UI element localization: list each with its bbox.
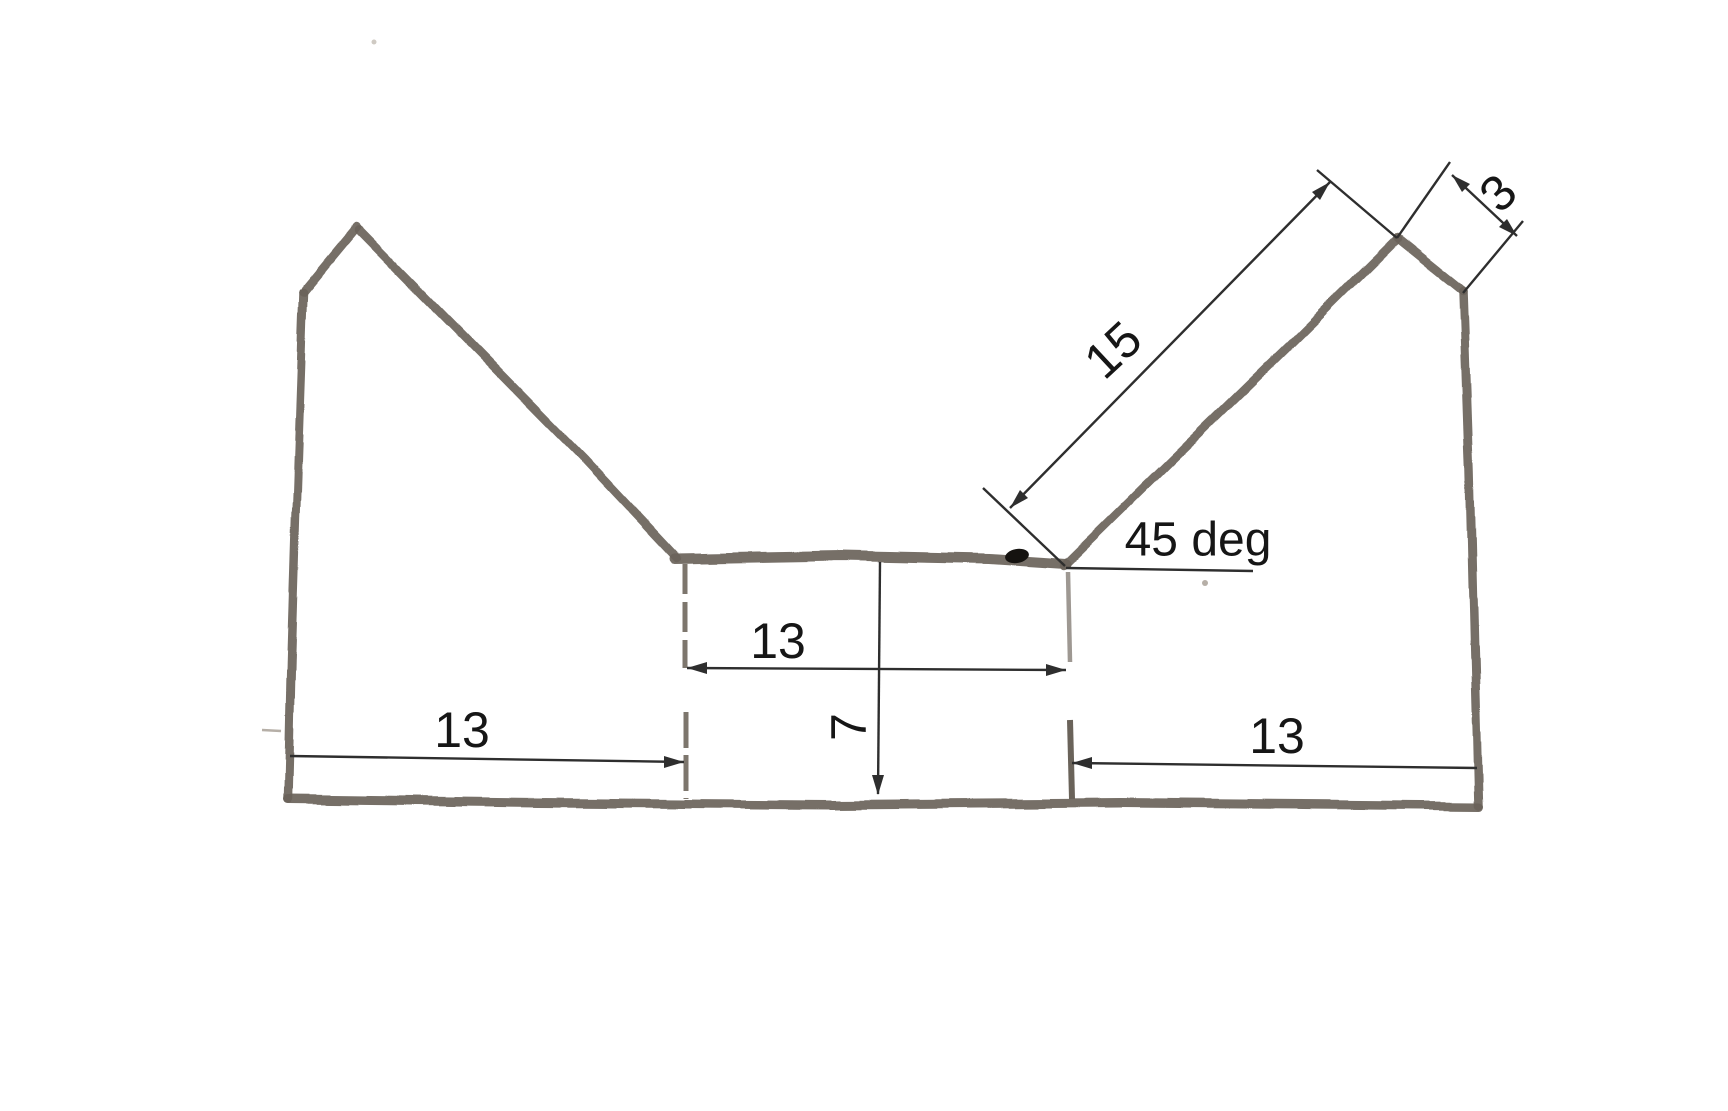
edge-left-side <box>288 292 303 800</box>
paper-speck-top <box>372 40 377 45</box>
edge-left-peak-cap <box>303 227 357 292</box>
arrowhead-depth-7 <box>872 775 884 795</box>
stray-pencil-tick <box>262 730 281 731</box>
witness-lines <box>262 40 1208 800</box>
edge-top-cut <box>1397 238 1464 292</box>
label-middle-13: 13 <box>750 613 806 669</box>
extension-line-right-peak <box>1317 170 1397 238</box>
dim-line-middle-13 <box>687 668 1066 670</box>
edge-right-side <box>1464 292 1478 805</box>
extension-line-peak-upper <box>1397 162 1450 238</box>
label-depth-7: 7 <box>821 713 877 741</box>
label-cut-3: 3 <box>1468 163 1527 222</box>
label-diagonal-15: 15 <box>1074 311 1153 390</box>
arrowhead-middle-13-left <box>687 662 707 674</box>
angle-reference-line <box>1066 568 1253 571</box>
label-bottom-right-13: 13 <box>1249 708 1305 764</box>
arrowhead-bottom-left-13 <box>664 756 684 768</box>
paper-sheet: 15 3 45 deg 13 7 13 13 <box>0 0 1728 1111</box>
dimension-lines <box>290 162 1523 795</box>
dimension-labels: 15 3 45 deg 13 7 13 13 <box>434 163 1527 764</box>
sketch-canvas: 15 3 45 deg 13 7 13 13 <box>0 0 1728 1111</box>
paper-speck-small <box>1202 580 1208 586</box>
dim-line-depth-7 <box>878 562 880 794</box>
label-angle-45deg: 45 deg <box>1125 514 1272 567</box>
edge-left-diagonal <box>359 230 677 558</box>
arrowhead-middle-13-right <box>1046 664 1066 676</box>
label-bottom-left-13: 13 <box>434 702 490 758</box>
witness-right-lower <box>1070 720 1072 799</box>
arrowhead-bottom-right-13 <box>1072 757 1092 769</box>
edge-bottom <box>288 800 1478 806</box>
witness-right-upper <box>1068 572 1070 662</box>
